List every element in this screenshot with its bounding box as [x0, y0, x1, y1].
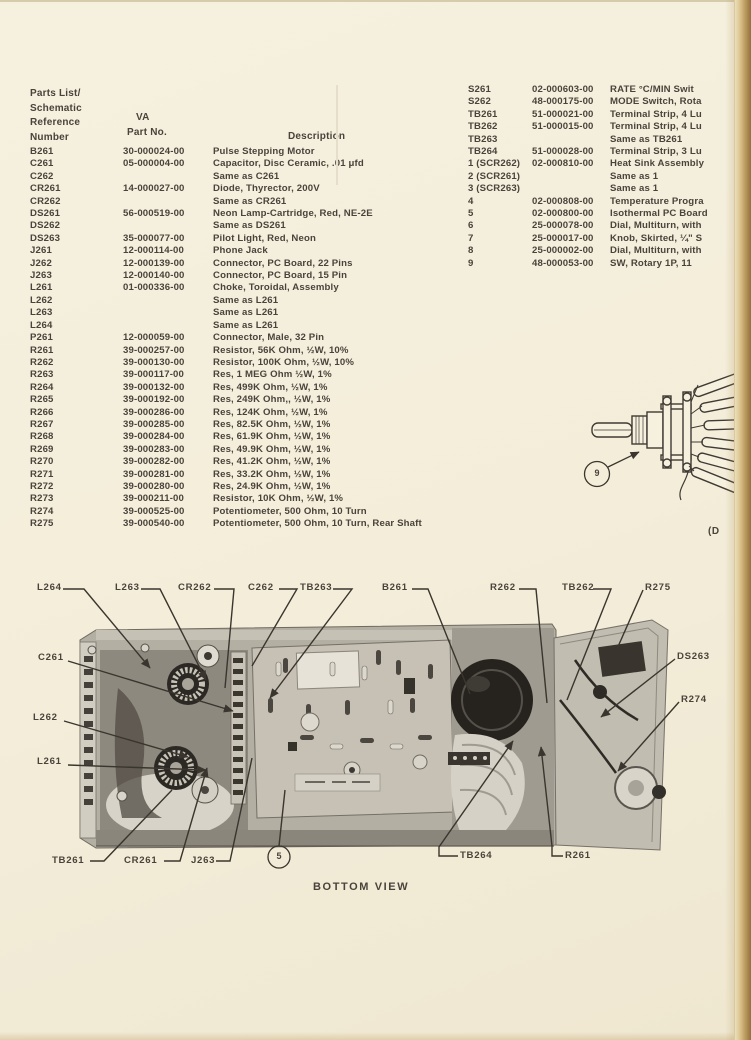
callout-label-r274: R274	[681, 694, 707, 705]
page-bottom-shadow	[0, 1032, 751, 1040]
book-edge	[734, 0, 751, 1040]
callout-label-r275: R275	[645, 582, 671, 593]
callout-label-tb263: TB263	[300, 582, 332, 593]
callout-label-l262: L262	[33, 712, 58, 723]
callout-label-tb262: TB262	[562, 582, 594, 593]
callout-label-r261: R261	[565, 850, 591, 861]
callout-number-5: 5	[273, 851, 285, 861]
callout-label-cr262: CR262	[178, 582, 211, 593]
callout-label-c261: C261	[38, 652, 64, 663]
manual-page: Parts List/SchematicReferenceNumber VAPa…	[0, 0, 751, 1040]
callout-label-l261: L261	[37, 756, 62, 767]
callout-label-tb264: TB264	[460, 850, 492, 861]
callout-label-l263: L263	[115, 582, 140, 593]
callout-label-b261: B261	[382, 582, 408, 593]
bottom-view-photo	[80, 620, 668, 850]
page-top-edge	[0, 0, 751, 2]
callout-label-j263: J263	[191, 855, 215, 866]
callout-label-l264: L264	[37, 582, 62, 593]
figure-artwork	[0, 0, 751, 1040]
callout-label-tb261: TB261	[52, 855, 84, 866]
callout-number-9: 9	[591, 468, 603, 478]
callout-label-r262: R262	[490, 582, 516, 593]
callout-label-c262: C262	[248, 582, 274, 593]
callout-label-ds263: DS263	[677, 651, 710, 662]
callout-label-cr261: CR261	[124, 855, 157, 866]
